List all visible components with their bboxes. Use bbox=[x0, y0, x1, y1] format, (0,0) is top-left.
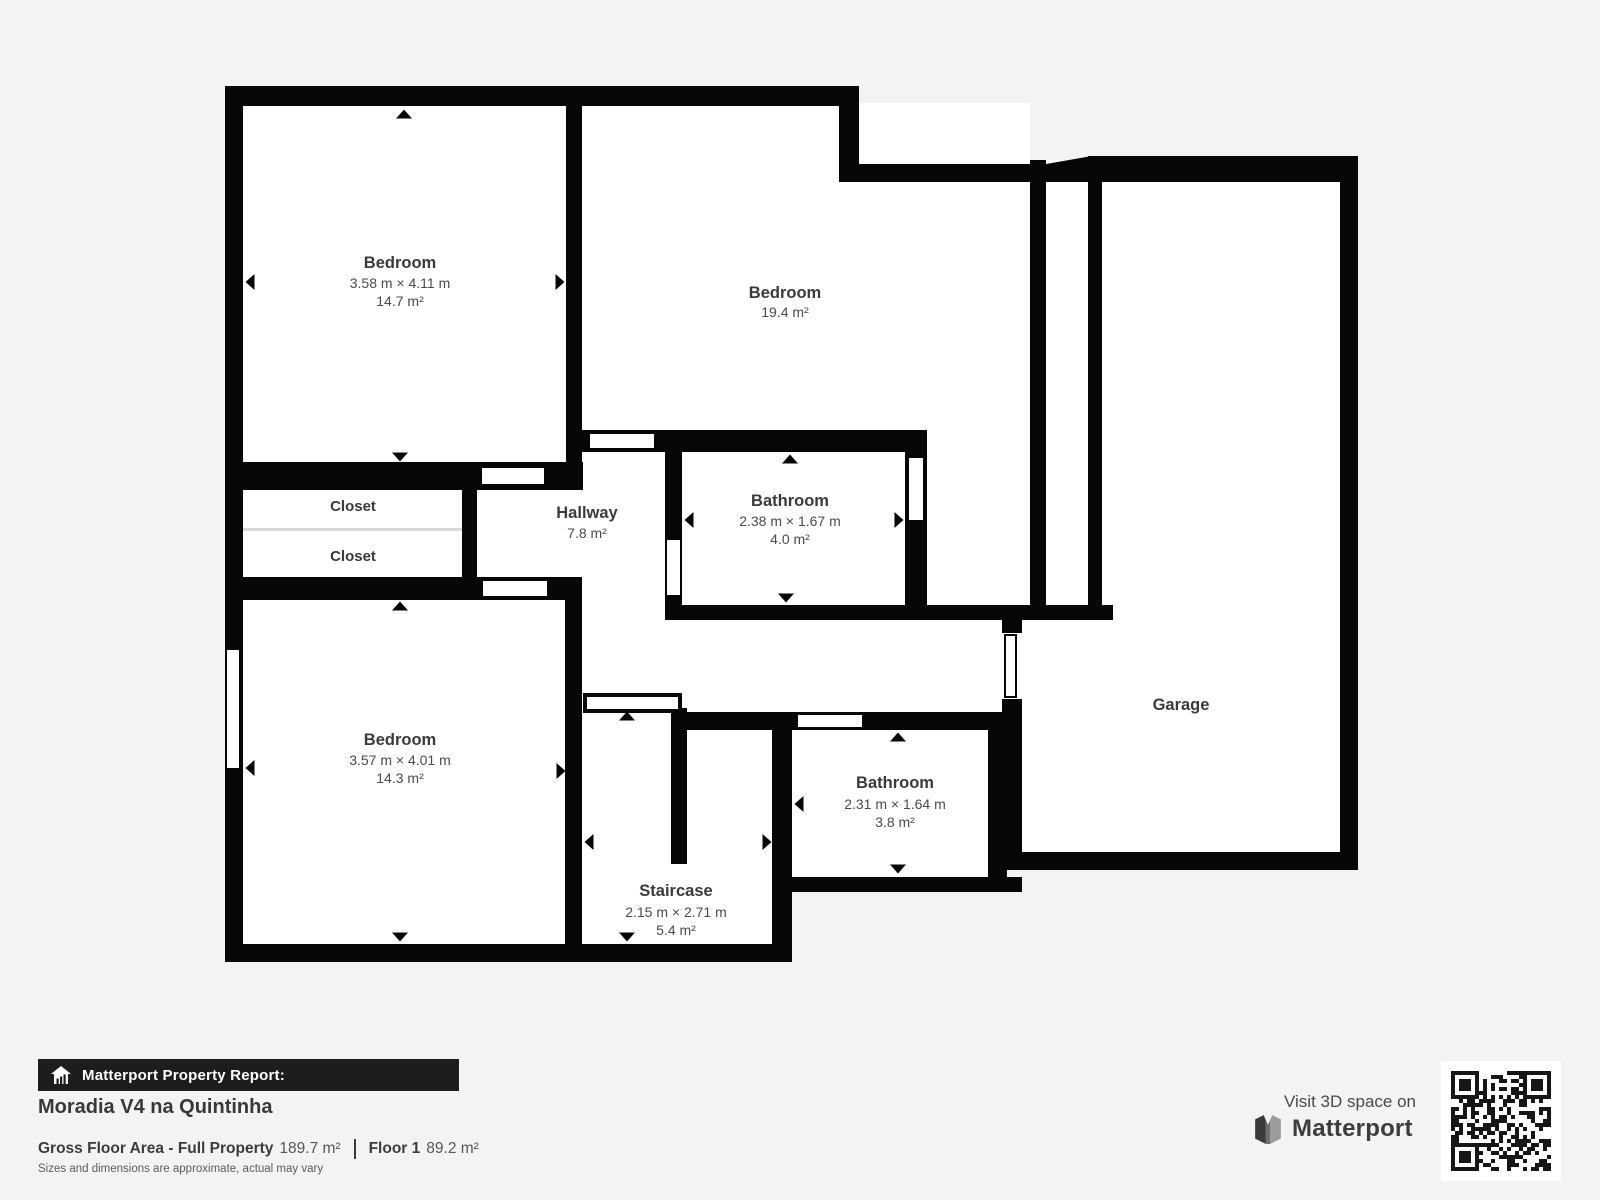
divider bbox=[354, 1139, 356, 1159]
matterport-brand: Matterport bbox=[1253, 1114, 1413, 1144]
room-label-bedroom1-dims: 3.58 m × 4.11 m bbox=[350, 275, 451, 291]
floor1-value: 89.2 m² bbox=[426, 1140, 479, 1158]
room-label-bathroom2-name: Bathroom bbox=[856, 774, 934, 792]
report-header-bar: Matterport Property Report: bbox=[38, 1059, 459, 1091]
room-label-staircase-dims: 2.15 m × 2.71 m bbox=[625, 904, 727, 920]
matterport-logo-icon bbox=[1253, 1114, 1283, 1144]
room-label-bedroom2-name: Bedroom bbox=[749, 284, 821, 302]
room-label-hallway-name: Hallway bbox=[556, 504, 618, 522]
room-label-bathroom1-name: Bathroom bbox=[751, 492, 829, 510]
room-label-bathroom2-area: 3.8 m² bbox=[875, 814, 915, 830]
room-label-staircase-name: Staircase bbox=[639, 882, 712, 900]
qr-code bbox=[1441, 1061, 1561, 1181]
floor-area-summary: Gross Floor Area - Full Property 189.7 m… bbox=[38, 1139, 479, 1159]
room-label-garage: Garage bbox=[1153, 696, 1210, 714]
floor1-label: Floor 1 bbox=[369, 1140, 421, 1158]
room-label-bathroom1-area: 4.0 m² bbox=[770, 531, 810, 547]
room-label-closet2: Closet bbox=[330, 548, 376, 565]
room-label-bedroom1-name: Bedroom bbox=[364, 254, 436, 272]
property-title: Moradia V4 na Quintinha bbox=[38, 1096, 272, 1119]
room-label-bedroom3-dims: 3.57 m × 4.01 m bbox=[349, 752, 451, 768]
house-chart-icon bbox=[51, 1066, 71, 1084]
gfa-label: Gross Floor Area - Full Property bbox=[38, 1140, 273, 1158]
room-label-bedroom3-area: 14.3 m² bbox=[376, 770, 424, 786]
visit-3d-label: Visit 3D space on bbox=[1270, 1092, 1430, 1112]
room-label-bedroom2-area: 19.4 m² bbox=[761, 304, 809, 320]
gfa-value: 189.7 m² bbox=[279, 1140, 340, 1158]
disclaimer-text: Sizes and dimensions are approximate, ac… bbox=[38, 1163, 323, 1175]
room-label-bathroom2-dims: 2.31 m × 1.64 m bbox=[844, 796, 946, 812]
floor-plan: Bedroom 3.58 m × 4.11 m 14.7 m² Bedroom … bbox=[0, 0, 1600, 1200]
room-label-bedroom3-name: Bedroom bbox=[364, 731, 436, 749]
room-label-bedroom1-area: 14.7 m² bbox=[376, 293, 424, 309]
room-label-bathroom1-dims: 2.38 m × 1.67 m bbox=[739, 513, 841, 529]
room-label-closet1: Closet bbox=[330, 498, 376, 515]
matterport-wordmark: Matterport bbox=[1292, 1115, 1413, 1143]
room-label-staircase-area: 5.4 m² bbox=[656, 922, 696, 938]
room-label-hallway-area: 7.8 m² bbox=[567, 525, 607, 541]
report-bar-label: Matterport Property Report: bbox=[82, 1067, 285, 1084]
